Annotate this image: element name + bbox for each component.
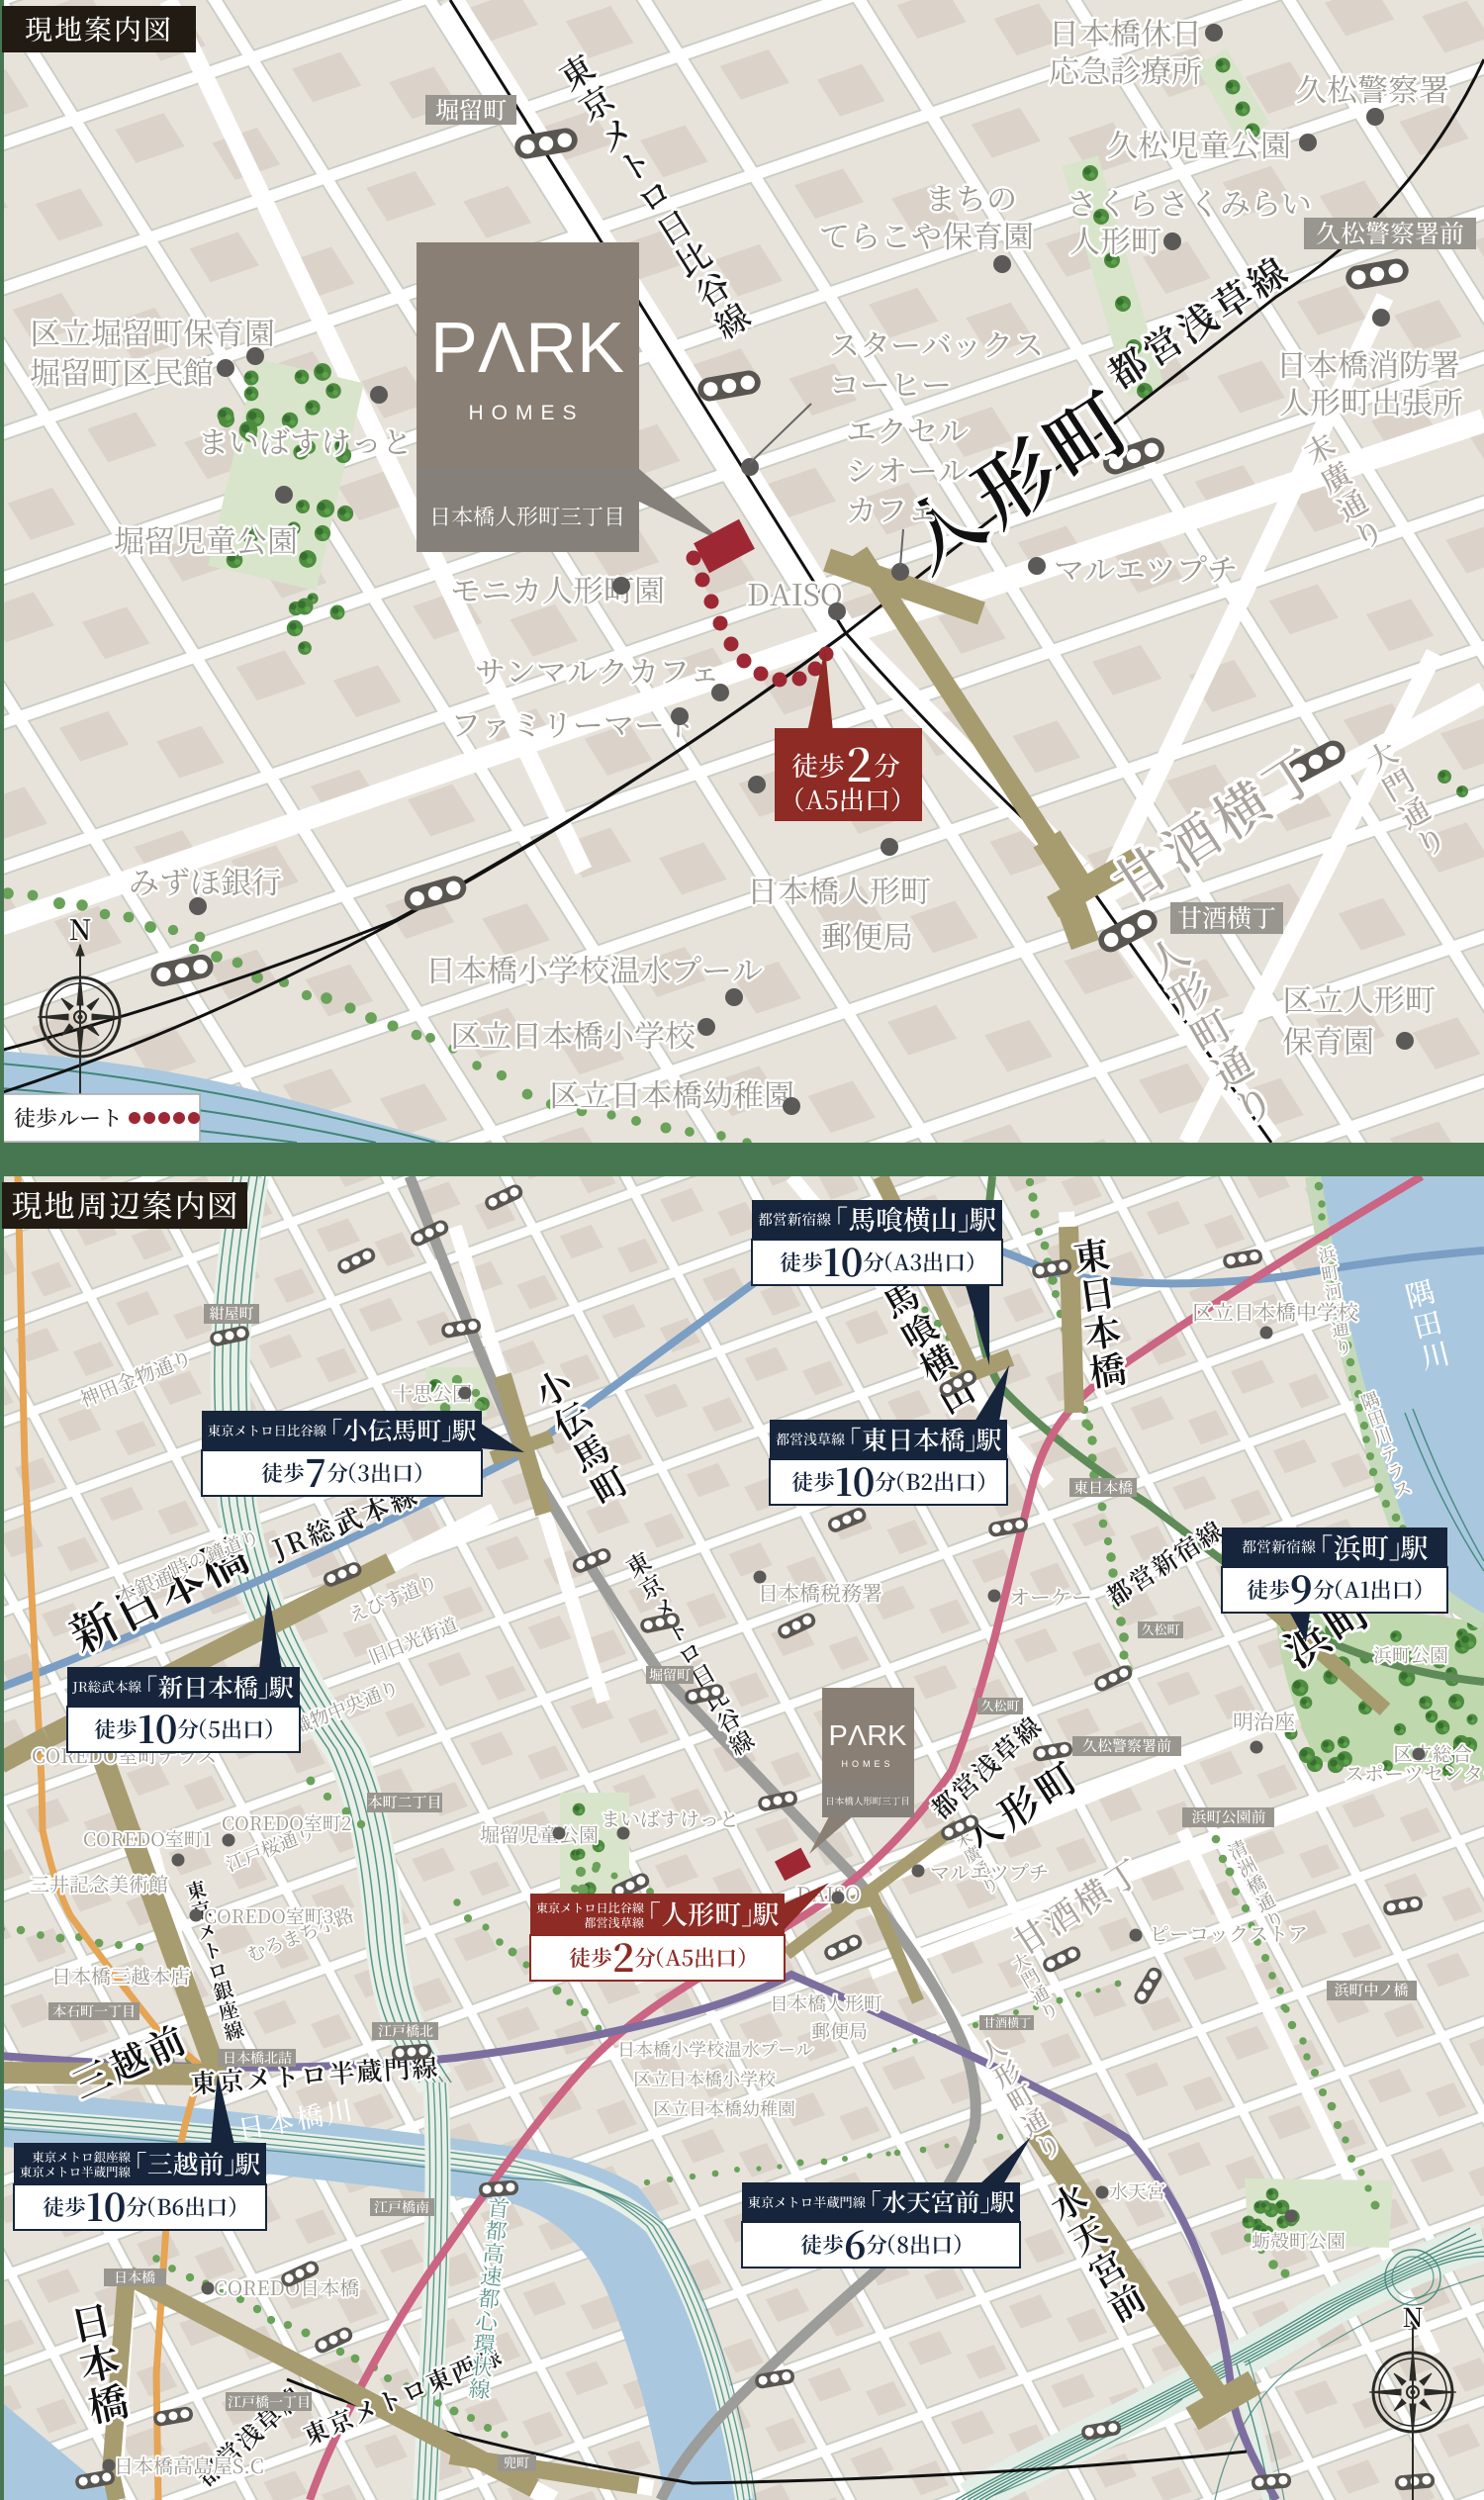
svg-text:PΛRK: PΛRK [829,1720,908,1752]
svg-text:PΛRK: PΛRK [430,309,624,388]
svg-text:HOMES: HOMES [468,402,584,424]
svg-text:HOMES: HOMES [841,1759,893,1769]
